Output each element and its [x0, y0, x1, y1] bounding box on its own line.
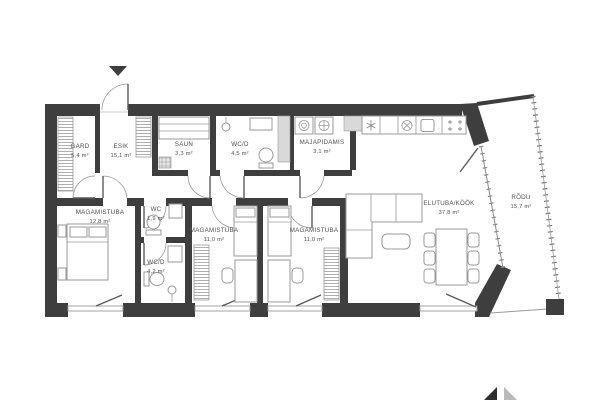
kitchen-counter	[362, 116, 466, 134]
chair	[222, 268, 233, 283]
wardrobe-icon	[136, 117, 151, 157]
balcony-post	[546, 299, 564, 315]
floor-plan-drawing: GARD 5,4 m² ESIK 15,1 m² SAUN 3,3 m² WC/…	[0, 0, 600, 400]
room-area: 15,7 m²	[510, 204, 531, 210]
room-area: 1,9 m²	[147, 216, 165, 222]
shower-icon	[222, 117, 230, 131]
room-area: 11,0 m²	[204, 237, 225, 243]
sink-icon	[169, 204, 182, 218]
door-arc	[300, 176, 324, 198]
window	[268, 306, 322, 311]
door-arc	[103, 176, 127, 198]
floor-plan: GARD 5,4 m² ESIK 15,1 m² SAUN 3,3 m² WC/…	[0, 0, 600, 400]
door-arc	[212, 206, 236, 228]
room-area: 3,1 m²	[313, 149, 331, 155]
room-label: WC/D	[147, 259, 165, 266]
door-arc	[220, 176, 244, 198]
window	[420, 306, 477, 311]
sauna-heater-icon	[159, 157, 171, 168]
sink-icon	[250, 118, 272, 130]
dining-chair	[468, 251, 479, 265]
room-area: 37,8 m²	[438, 210, 459, 216]
room-area: 4,2 m²	[147, 269, 165, 275]
chair	[292, 268, 303, 283]
door-arc	[73, 176, 95, 198]
room-area: 12,8 m²	[89, 219, 110, 225]
room-label: MAGAMISTUBA	[290, 227, 339, 234]
washing-machine-icon	[295, 117, 313, 134]
coffee-table	[382, 234, 410, 249]
kitchen-sink-icon	[421, 120, 434, 132]
dining-table	[436, 229, 467, 285]
room-area: 15,1 m²	[110, 153, 131, 159]
balcony-bottom-edge	[490, 309, 548, 313]
room-label: WC/D	[231, 141, 249, 148]
wardrobe-icon	[194, 245, 209, 300]
room-label: MAGAMISTUBA	[76, 209, 125, 216]
room-label: RÕDU	[511, 194, 530, 201]
shaft-niche	[278, 116, 290, 162]
dining-set	[424, 229, 479, 285]
balcony-door-leaf	[460, 148, 478, 172]
desk	[235, 260, 257, 302]
pillow	[89, 227, 106, 237]
room-label: SAUN	[175, 141, 193, 148]
door-arc	[188, 176, 210, 198]
room-area: 3,3 m²	[175, 151, 193, 157]
pillow	[70, 227, 87, 237]
wardrobe-icon	[324, 248, 339, 300]
pillow	[236, 208, 255, 217]
door-arc	[288, 206, 312, 228]
sauna-bench	[159, 117, 209, 139]
dining-chair	[424, 251, 435, 265]
dining-chair	[424, 233, 435, 247]
dining-chair	[468, 269, 479, 283]
north-arrow-icon	[484, 387, 517, 400]
dining-chair	[468, 233, 479, 247]
window-leaf	[446, 294, 476, 307]
window-leaf	[296, 295, 321, 306]
single-bed	[268, 206, 291, 256]
room-label: ELUTUBA/KÖÖK	[423, 200, 475, 207]
room-label: WC	[151, 206, 162, 213]
room-area: 5,4 m²	[71, 153, 89, 159]
room-label: MAGAMISTUBA	[190, 227, 239, 234]
dryer-icon	[315, 117, 333, 134]
room-area: 11,0 m²	[304, 237, 325, 243]
shaft-niche	[344, 116, 362, 131]
room-area: 4,5 m²	[231, 151, 249, 157]
desk	[268, 260, 290, 302]
nightstand	[58, 268, 66, 280]
room-label: GARD	[71, 143, 90, 150]
room-label: MAJAPIDAMIS	[300, 139, 345, 146]
nightstand	[58, 225, 66, 237]
window	[195, 306, 250, 311]
window-leaf	[96, 295, 122, 306]
sink-icon	[168, 246, 182, 262]
window	[68, 306, 123, 311]
double-bed	[67, 224, 108, 280]
balcony-top-edge	[477, 96, 534, 104]
door-arc	[102, 84, 128, 110]
dining-chair	[424, 269, 435, 283]
toilet-icon	[259, 148, 273, 168]
room-label: ESIK	[113, 143, 129, 150]
shower-icon	[168, 286, 176, 302]
pillow	[270, 208, 289, 217]
entrance-marker-icon	[109, 66, 127, 76]
